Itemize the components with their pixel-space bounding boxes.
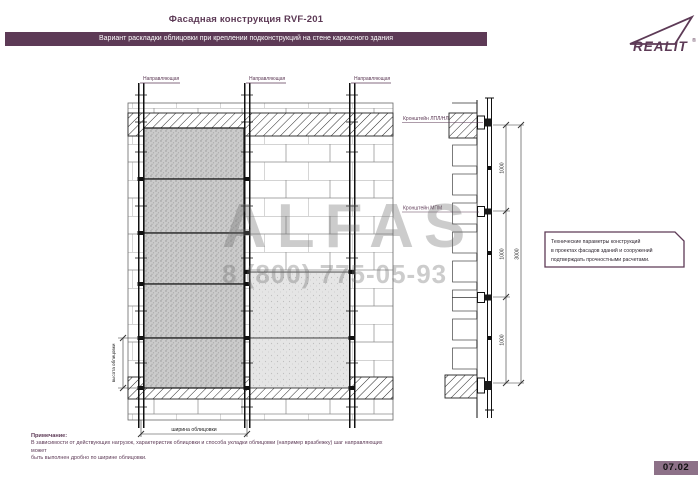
rail-label: Направляющая (249, 76, 285, 82)
section-rail (485, 98, 494, 418)
cladding-panel-light (250, 272, 350, 338)
masonry-section-blocks (453, 145, 478, 369)
section-view: 1000 1000 1000 3000 Кронштейн ЛПЛ/НЛ Кро… (402, 98, 524, 418)
dim-3000: 3000 (515, 248, 521, 259)
bracket-bottom (478, 378, 492, 393)
cladding-panel-dark (144, 284, 244, 338)
cladding-panel-dark (144, 179, 244, 233)
note-box: Технические параметры конструкций в прое… (545, 232, 684, 267)
cladding-panel-light (250, 338, 350, 388)
dim-1000: 1000 (500, 162, 506, 173)
cladding-panel-dark (144, 233, 244, 284)
note-line: в проектах фасадов зданий и сооружений (551, 247, 653, 254)
note-line: Технические параметры конструкций (551, 238, 640, 245)
height-dim-label: высота облицовки (111, 343, 116, 382)
rail-labels: Направляющая Направляющая Направляющая (140, 76, 391, 83)
cladding-column-right (250, 272, 350, 388)
width-dim-label: ширина облицовки (171, 427, 216, 433)
bracket-top-label: Кронштейн ЛПЛ/НЛ (403, 115, 449, 122)
dim-1000: 1000 (500, 248, 506, 259)
top-slab-section (449, 113, 477, 138)
cladding-column-left (144, 128, 244, 388)
rail-label: Направляющая (143, 76, 179, 82)
section-dim-labels: 1000 1000 1000 3000 (500, 162, 521, 345)
elevation-view: Направляющая Направляющая Направляющая ш… (111, 76, 393, 437)
bracket-mid-label: Кронштейн МПМ (403, 205, 442, 212)
bottom-slab-section (445, 375, 477, 398)
facade-drawing: Направляющая Направляющая Направляющая ш… (0, 0, 700, 498)
bracket-mid-1 (478, 207, 492, 217)
note-line: подтверждать прочностными расчетами. (551, 257, 649, 263)
cladding-panel-dark (144, 338, 244, 388)
dim-1000: 1000 (500, 334, 506, 345)
rail-label: Направляющая (354, 76, 390, 82)
cladding-panel-dark (144, 128, 244, 179)
